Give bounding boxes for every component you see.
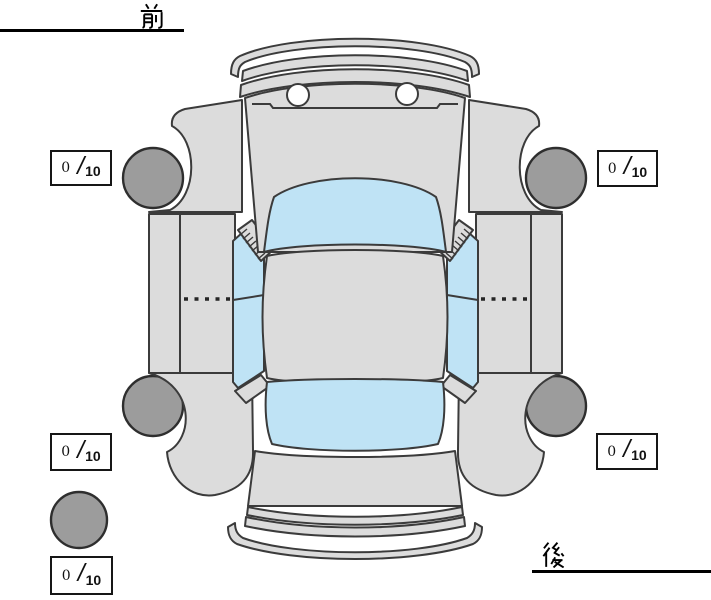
front-label bbox=[138, 2, 165, 29]
rating-separator: / bbox=[78, 563, 85, 583]
rating-value: 0 bbox=[62, 569, 71, 583]
trunk bbox=[248, 451, 462, 506]
rating-value: 0 bbox=[61, 161, 70, 175]
rating-box-rear-left: 0 / 10 bbox=[50, 433, 112, 471]
rating-max: 10 bbox=[86, 572, 102, 588]
rating-separator: / bbox=[77, 156, 84, 176]
roof bbox=[263, 250, 448, 384]
rating-value: 0 bbox=[608, 162, 617, 176]
rear-kanji-glyph bbox=[540, 541, 567, 568]
rating-max: 10 bbox=[631, 447, 647, 463]
front-label-underline bbox=[0, 29, 184, 32]
rating-value: 0 bbox=[61, 445, 70, 459]
rear-label-underline bbox=[532, 570, 711, 573]
front-kanji-glyph bbox=[138, 2, 165, 29]
rating-box-front-left: 0 / 10 bbox=[50, 150, 112, 186]
rating-box-rear-right: 0 / 10 bbox=[596, 433, 658, 470]
rear-label bbox=[540, 541, 567, 568]
car-condition-diagram: 0 / 10 0 / 10 0 / 10 0 / 10 0 / 10 bbox=[0, 0, 711, 600]
rating-box-front-right: 0 / 10 bbox=[597, 150, 658, 187]
rating-max: 10 bbox=[85, 448, 101, 464]
car-top-view bbox=[0, 0, 711, 600]
rating-value: 0 bbox=[607, 445, 616, 459]
front-left-tire bbox=[123, 148, 183, 208]
left-door-panel bbox=[149, 214, 235, 373]
front-right-tire bbox=[526, 148, 586, 208]
rating-separator: / bbox=[623, 439, 630, 459]
rear-window bbox=[266, 379, 445, 451]
right-headlight bbox=[396, 83, 418, 105]
left-headlight bbox=[287, 84, 309, 106]
rating-separator: / bbox=[77, 440, 84, 460]
rating-max: 10 bbox=[85, 163, 101, 179]
rating-max: 10 bbox=[632, 164, 648, 180]
rating-separator: / bbox=[624, 156, 631, 176]
spare-tire bbox=[51, 492, 107, 548]
windshield bbox=[264, 178, 446, 252]
rating-box-spare: 0 / 10 bbox=[50, 556, 113, 595]
